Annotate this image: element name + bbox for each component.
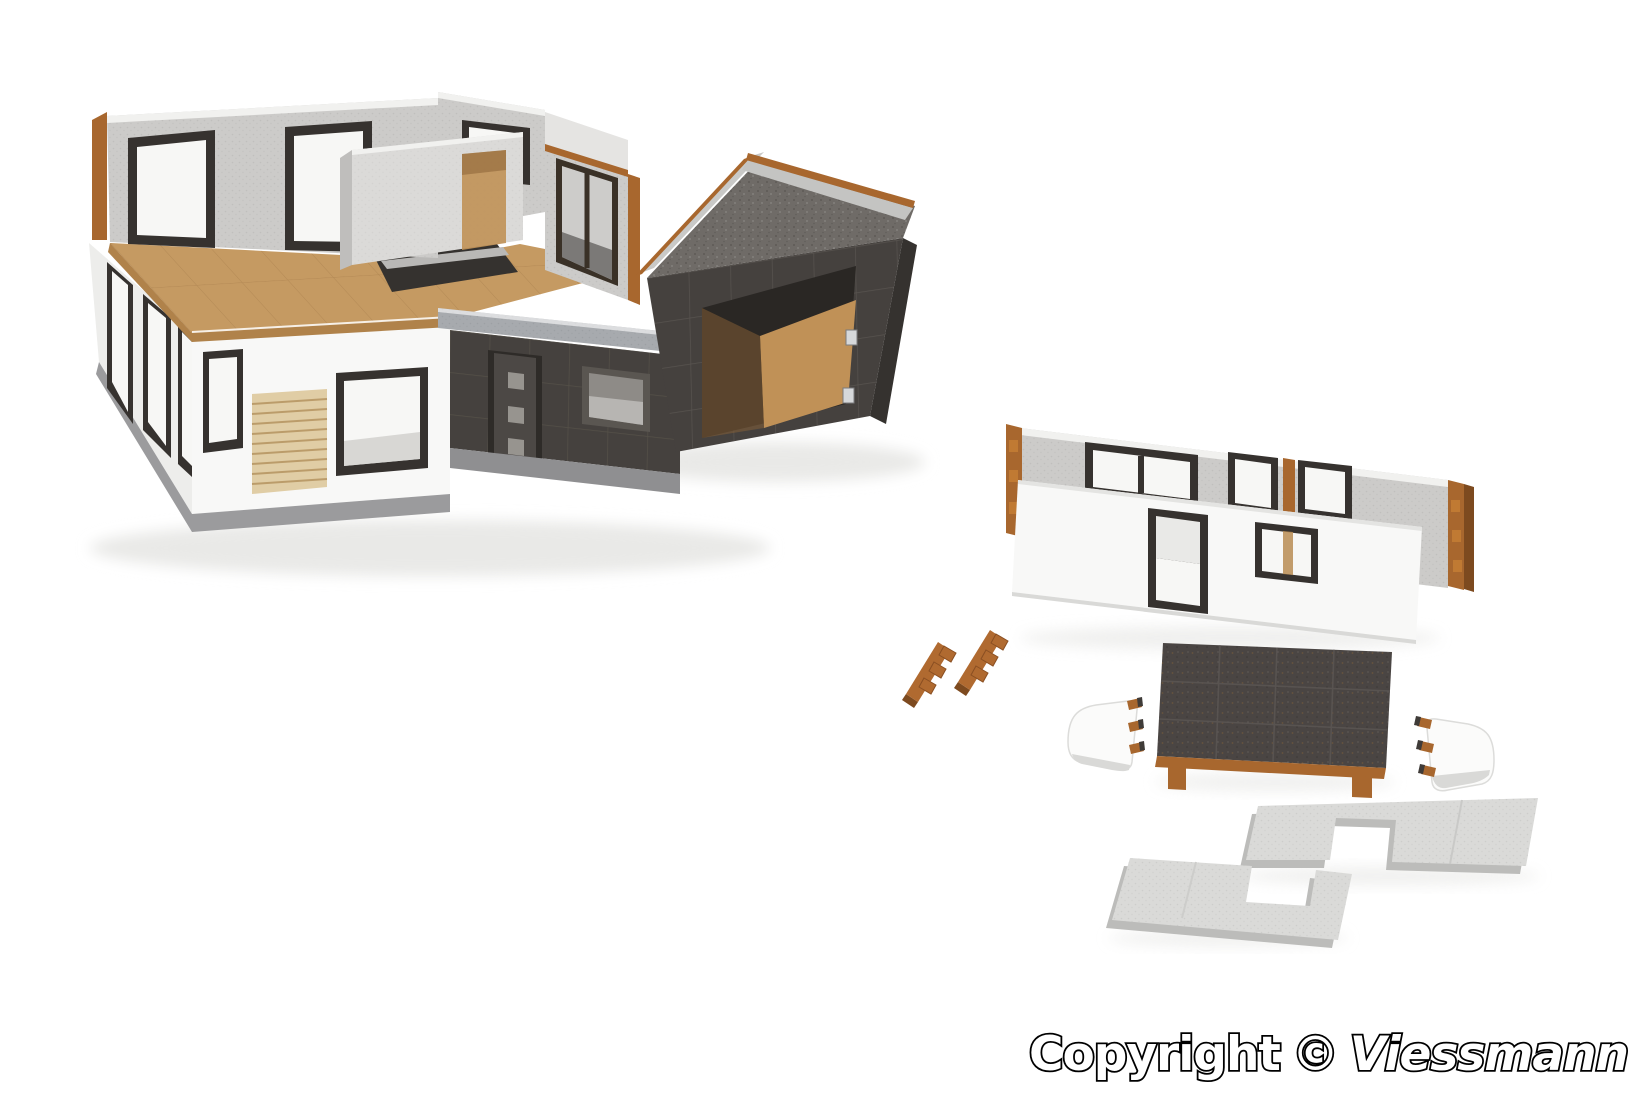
wood-edge-pegs [1009,440,1018,514]
front-corner-window [203,349,243,453]
wood-slat-panel [252,389,327,494]
panel-foot [1168,767,1186,790]
wall-door-opening [1298,460,1352,521]
entrance-module [438,308,690,494]
copyright-watermark: Copyright©Viessmann [1029,1027,1628,1082]
wall-wood-edge [92,112,107,240]
gusset-wood-tabs [1127,697,1145,754]
wall-wood-edge [628,174,640,305]
wall-wood-edge [1464,484,1474,592]
product-photo: Copyright©Viessmann [0,0,1650,1100]
left-wall-window [178,325,192,477]
door-light [508,438,524,456]
wood-connector-strip [902,642,956,708]
door-light [508,406,524,424]
door-fitting [843,388,854,403]
panel-foot [1352,776,1372,798]
corner-part-right [1414,716,1494,791]
watermark-prefix: Copyright [1029,1027,1280,1082]
watermark-text: Copyright©Viessmann [1029,1027,1628,1082]
entrance-door [488,350,542,462]
corner-part-left [1068,697,1145,771]
ceiling-slab-upper [1240,798,1538,874]
front-window [336,367,428,476]
wood-connector-strip [954,630,1008,696]
module-window [582,366,650,432]
upper-window [128,130,215,248]
square-window [1255,522,1318,584]
model-kit-scene: Copyright©Viessmann [0,0,1650,1100]
brand-logo-text: Viessmann [1350,1027,1628,1082]
left-wall-window [107,262,133,424]
left-wall-window [143,294,171,458]
door-light [508,372,524,390]
door-fitting [846,330,857,345]
copyright-symbol-icon: © [1292,1027,1338,1082]
garage [634,152,917,452]
kit-parts [902,424,1538,948]
tall-window [1148,508,1208,614]
